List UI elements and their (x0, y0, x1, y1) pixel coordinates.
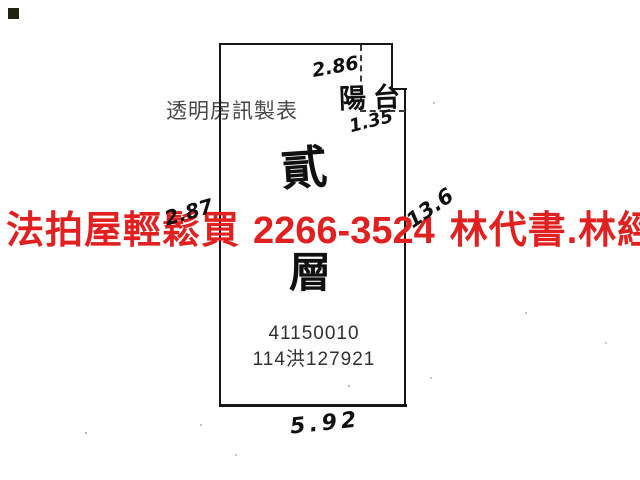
scanned-floorplan-page: { "canvas": {"background": "#ffffff", "l… (0, 0, 640, 480)
floor-label-char-2: 層 (289, 252, 331, 294)
case-number: 41150010 (219, 323, 409, 345)
case-reference: 114洪127921 (219, 344, 409, 371)
dimension-bottom-width: 5.92 (289, 407, 362, 439)
ad-overlay-line: 法拍屋輕鬆買2266-3524林代書.林經理 (6, 212, 640, 252)
scan-noise (85, 432, 87, 434)
plan-bottom-wall (219, 404, 407, 407)
ad-contact: 林代書.林經理 (450, 210, 640, 252)
corner-marker (8, 8, 19, 19)
watermark-text: 透明房訊製表 (166, 95, 298, 125)
plan-top-wall (219, 43, 393, 45)
floor-label-char-1: 貳 (279, 143, 328, 192)
